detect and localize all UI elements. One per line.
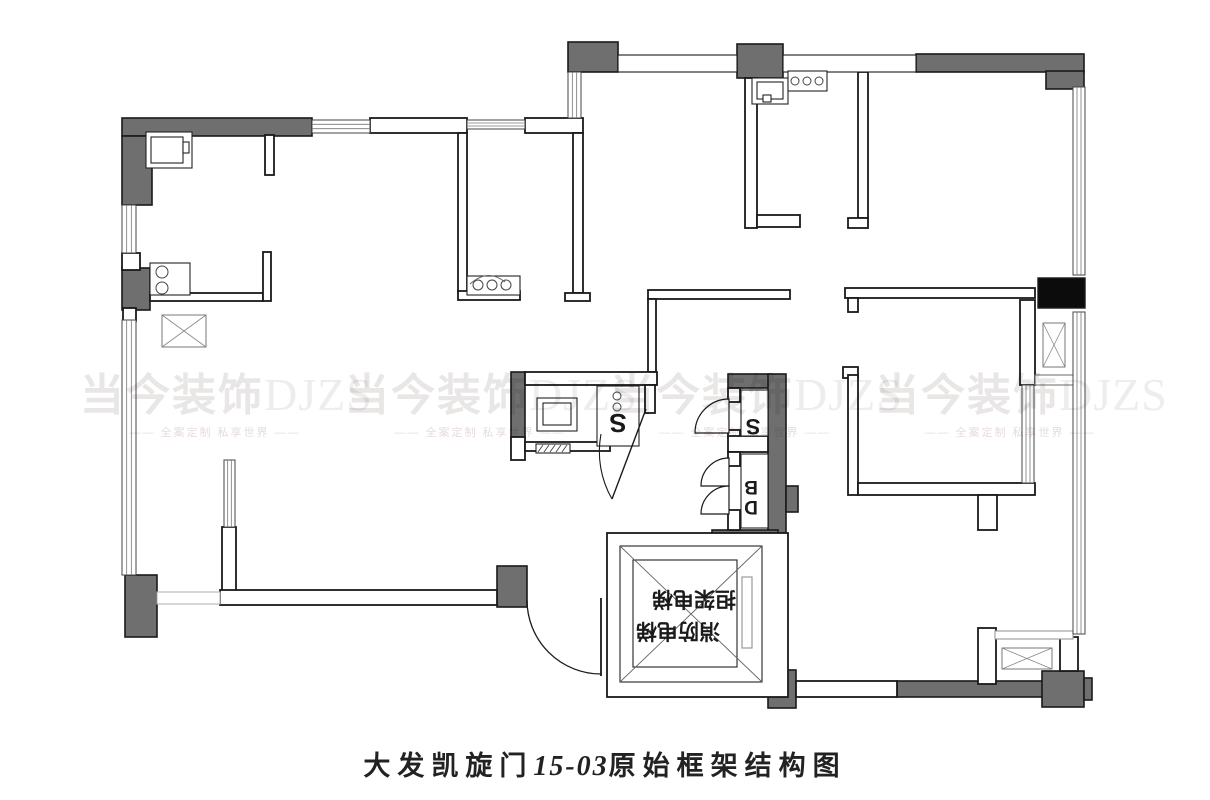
wc2-door-fan-a: [701, 458, 729, 486]
title-unit-number: 15-03: [533, 751, 608, 782]
wall: [728, 388, 740, 402]
toilet-glyph-s1: S: [609, 408, 626, 438]
column-left-mid: [122, 268, 150, 310]
wall: [728, 510, 740, 530]
burner-circle: [803, 77, 811, 85]
shaft-ledge-right: [1035, 375, 1077, 385]
burner-circle: [791, 77, 799, 85]
tab-bottom-right: [1084, 678, 1092, 700]
wall: [565, 293, 590, 301]
wall: [757, 215, 800, 227]
wall: [848, 298, 858, 312]
sink-top-left-inner: [151, 137, 183, 163]
elevator-car: [633, 560, 737, 667]
window: [224, 460, 235, 527]
basin-tap: [763, 95, 771, 102]
elevator-door-slot: [742, 577, 752, 648]
burner-circle: [156, 282, 168, 294]
wall: [848, 218, 868, 228]
wall: [458, 133, 467, 293]
title-project-name: 大发凯旋门: [363, 751, 533, 781]
beam-top-right-leg: [1046, 71, 1084, 89]
wall: [265, 135, 274, 175]
beam-top-right: [916, 54, 1084, 72]
wall: [978, 628, 996, 684]
wc1-door-fan: [695, 399, 729, 433]
wall: [648, 299, 656, 372]
elevator-label-2: 消防电梯: [636, 619, 720, 643]
column-bottom-right: [1042, 671, 1084, 707]
burner-circle: [156, 266, 168, 278]
burner-circle: [613, 392, 621, 400]
window: [122, 205, 136, 253]
wall-bath-top: [728, 374, 770, 388]
burner-circle: [473, 280, 483, 290]
wall: [858, 72, 868, 218]
drawing-title: 大发凯旋门15-03原始框架结构图: [0, 744, 1210, 783]
sink-tab: [183, 142, 189, 153]
opening-bottom-left: [157, 592, 220, 604]
window-wall-top-1: [618, 55, 737, 72]
column-bottom-left: [125, 575, 157, 637]
window: [568, 72, 581, 118]
wall: [222, 527, 236, 592]
window-wall-top-2: [783, 55, 916, 72]
wall: [848, 375, 858, 495]
wall: [511, 437, 525, 460]
floor-plan-page: 当今装饰DJZS—— 全案定制 私享世界 ——当今装饰DJZS—— 全案定制 私…: [0, 0, 1210, 800]
beam-bottom-right: [897, 681, 1045, 697]
tab-bath-right: [786, 486, 798, 512]
fixture-glyph-d: D: [744, 496, 758, 517]
wall-bath-right: [768, 374, 786, 542]
column-black-right: [1038, 278, 1085, 308]
wall-bath-left: [511, 372, 525, 438]
wall: [123, 308, 136, 321]
ledge-bottom-right: [995, 631, 1073, 639]
floor-plan-svg: SSBD担架电梯消防电梯: [0, 0, 1210, 800]
window: [1073, 87, 1085, 275]
wall: [122, 253, 140, 270]
wall: [796, 681, 897, 697]
wall: [525, 372, 657, 385]
window: [122, 320, 136, 575]
toilet-glyph-s2: S: [746, 414, 761, 439]
wall: [220, 590, 497, 605]
window: [312, 120, 370, 133]
column-top-a: [568, 42, 618, 72]
wall: [645, 385, 655, 413]
washbasin-bath-inner: [543, 403, 571, 425]
wc2-door-fan-b: [701, 486, 729, 514]
wall: [978, 495, 997, 530]
wall: [263, 252, 271, 301]
wall: [1060, 637, 1078, 671]
wall: [648, 290, 790, 299]
wall: [845, 288, 1035, 298]
column-top-b: [737, 44, 783, 78]
title-drawing-type: 原始框架结构图: [609, 751, 847, 781]
burner-circle: [487, 280, 497, 290]
wall: [525, 118, 583, 133]
window: [1022, 385, 1034, 483]
wall: [573, 133, 583, 293]
column-entry: [497, 566, 527, 607]
entry-door-arc: [527, 600, 601, 674]
wall: [1020, 300, 1035, 385]
wall: [858, 483, 1035, 495]
elevator-label-1: 担架电梯: [652, 587, 736, 611]
burner-circle: [815, 77, 823, 85]
burner-circle: [501, 280, 511, 290]
window: [467, 120, 525, 129]
window: [1073, 312, 1085, 634]
wall: [370, 118, 467, 133]
fixture-glyph-b: B: [744, 476, 758, 497]
wall: [728, 452, 740, 466]
